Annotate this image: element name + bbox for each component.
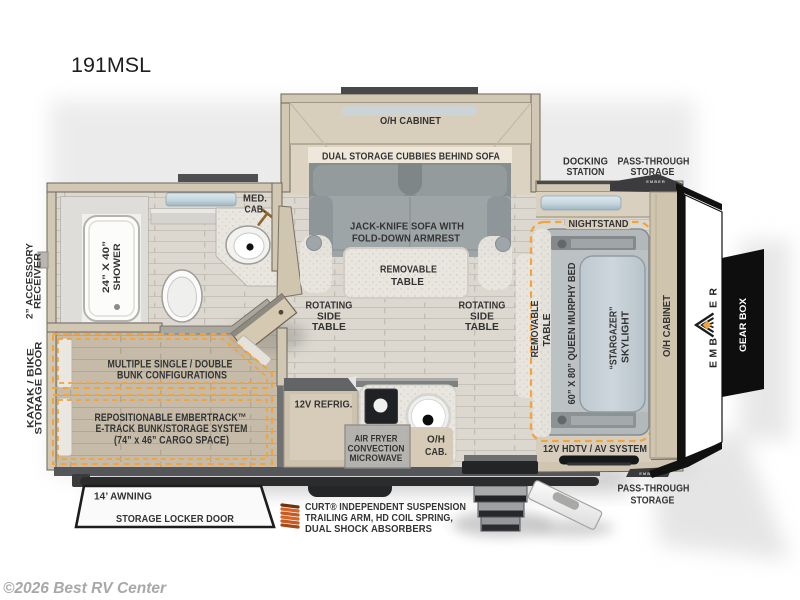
svg-text:JACK-KNIFE SOFA WITH: JACK-KNIFE SOFA WITH <box>350 221 464 233</box>
svg-text:60” X 80” QUEEN MURPHY BED: 60” X 80” QUEEN MURPHY BED <box>567 263 578 405</box>
svg-text:O/H CABINET: O/H CABINET <box>380 116 441 127</box>
svg-text:O/H CABINET: O/H CABINET <box>662 295 673 357</box>
svg-text:MED.: MED. <box>243 194 267 205</box>
svg-text:EMB: EMB <box>708 334 720 368</box>
svg-text:TABLE: TABLE <box>312 321 346 333</box>
svg-text:©2026 Best RV Center: ©2026 Best RV Center <box>3 580 167 597</box>
svg-text:STATION: STATION <box>567 166 605 178</box>
svg-text:O/H: O/H <box>427 435 445 446</box>
svg-text:SKYLIGHT: SKYLIGHT <box>621 311 632 363</box>
svg-text:FOLD-DOWN ARMREST: FOLD-DOWN ARMREST <box>352 233 460 245</box>
svg-text:STORAGE DOOR: STORAGE DOOR <box>34 341 45 434</box>
svg-text:AIR FRYER: AIR FRYER <box>355 434 398 444</box>
svg-text:“STARGAZER”: “STARGAZER” <box>609 307 620 370</box>
svg-text:STORAGE: STORAGE <box>631 495 675 507</box>
svg-text:REMOVABLE: REMOVABLE <box>380 264 437 276</box>
svg-text:GEAR BOX: GEAR BOX <box>738 297 749 352</box>
svg-text:24” X 40”: 24” X 40” <box>101 241 112 293</box>
svg-text:CAB.: CAB. <box>245 205 266 216</box>
svg-text:BUNK CONFIGURATIONS: BUNK CONFIGURATIONS <box>117 370 227 382</box>
svg-text:191MSL: 191MSL <box>71 53 151 77</box>
svg-text:TABLE: TABLE <box>391 276 424 288</box>
svg-text:MICROWAVE: MICROWAVE <box>350 453 403 463</box>
svg-text:DUAL STORAGE CUBBIES BEHIND SO: DUAL STORAGE CUBBIES BEHIND SOFA <box>322 152 500 163</box>
svg-text:STORAGE: STORAGE <box>631 166 675 178</box>
svg-text:TABLE: TABLE <box>465 321 499 333</box>
svg-text:14’ AWNING: 14’ AWNING <box>94 491 152 503</box>
svg-text:EMBER: EMBER <box>646 179 665 184</box>
svg-text:12V REFRIG.: 12V REFRIG. <box>295 399 353 411</box>
svg-text:NIGHTSTAND: NIGHTSTAND <box>569 218 629 230</box>
svg-text:(74” x 46” CARGO SPACE): (74” x 46” CARGO SPACE) <box>114 435 229 447</box>
svg-text:RECEIVER: RECEIVER <box>33 253 44 309</box>
svg-text:ER: ER <box>708 284 720 308</box>
svg-text:DUAL SHOCK ABSORBERS: DUAL SHOCK ABSORBERS <box>305 523 432 535</box>
svg-text:REMOVABLE: REMOVABLE <box>530 300 541 357</box>
svg-text:12V HDTV / AV SYSTEM: 12V HDTV / AV SYSTEM <box>543 443 647 455</box>
svg-text:SHOWER: SHOWER <box>112 243 123 290</box>
svg-text:E-TRACK BUNK/STORAGE SYSTEM: E-TRACK BUNK/STORAGE SYSTEM <box>96 423 248 435</box>
svg-text:STORAGE LOCKER DOOR: STORAGE LOCKER DOOR <box>116 513 234 525</box>
svg-text:TABLE: TABLE <box>542 313 553 346</box>
svg-text:CONVECTION: CONVECTION <box>348 444 405 454</box>
svg-text:CAB.: CAB. <box>425 447 447 458</box>
svg-text:PASS-THROUGH: PASS-THROUGH <box>618 483 690 495</box>
